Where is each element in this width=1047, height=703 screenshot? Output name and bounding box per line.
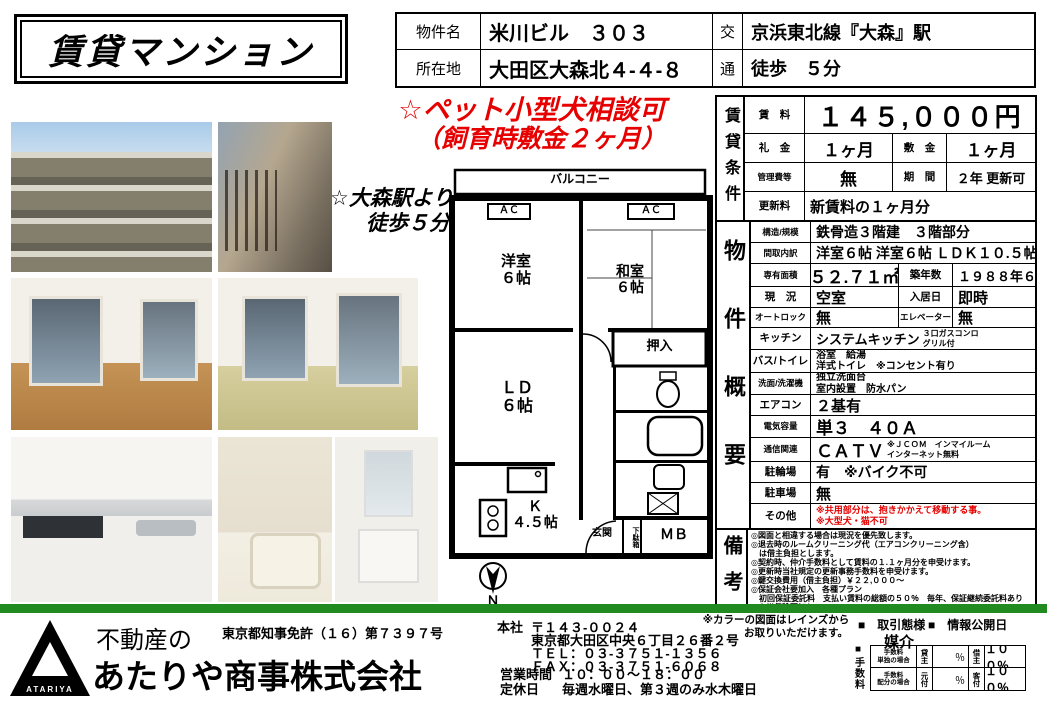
- company-logo: ATARIYA: [10, 620, 90, 696]
- bath-toilet-row: バス/トイレ 浴室 給湯 洋式トイレ ※コンセント有り: [751, 350, 1035, 373]
- plan-meterbox-label: ＭＢ: [644, 526, 704, 542]
- area-label: 専有面積: [751, 264, 811, 286]
- plan-japanese-room-label: 和室 ６帖: [598, 263, 662, 295]
- key-money-value: １ヶ月: [805, 134, 893, 162]
- company-name: あたりや商事株式会社: [92, 650, 422, 698]
- other-label: その他: [751, 504, 811, 528]
- autolock-value: 無: [811, 308, 899, 327]
- plan-ac-left-label: ＡＣ: [488, 205, 530, 217]
- electric-row: 電気容量 単３ ４０Ａ: [751, 416, 1035, 438]
- hours-label: 営業時間: [500, 668, 562, 683]
- mgmtfee-term-row: 管理費等 無 期 間 ２年 更新可: [745, 163, 1035, 192]
- transport-line-value: 京浜東北線『大森』駅: [743, 14, 1034, 50]
- plan-living-label: ＬＤ ６帖: [472, 380, 562, 417]
- electric-label: 電気容量: [751, 416, 811, 437]
- movein-value: 即時: [953, 287, 1035, 307]
- pet-promo-text: ☆ペット小型犬相談可 （飼育時敷金２ヶ月）: [338, 96, 726, 153]
- property-overview-section-label: 物件概要: [717, 222, 751, 528]
- hours-value: １０：００～１８：００: [562, 668, 705, 683]
- reins-note: ※カラーの図面はレインズから お取りいただけます。: [688, 614, 864, 639]
- fee-row2-party2: 客付: [969, 668, 985, 690]
- reins-note-line1: ※カラーの図面はレインズから: [688, 614, 864, 627]
- catv-value: ＣＡＴＶ: [811, 438, 884, 461]
- property-name-label: 物件名: [397, 14, 481, 50]
- address-value: 大田区大森北４-４-８: [481, 50, 713, 86]
- photo-washbasin: [335, 437, 438, 602]
- fee-row2-party1: 元付: [917, 668, 933, 690]
- fee-row1-name: 手数料 単独の場合: [871, 646, 917, 668]
- status-value: 空室: [811, 287, 899, 307]
- transport-label-top: 交: [713, 14, 743, 50]
- kitchen-row: キッチン システムキッチン ３口ガスコンロ グリル付: [751, 328, 1035, 350]
- keymoney-deposit-row: 礼 金 １ヶ月 敷 金 １ヶ月: [745, 134, 1035, 163]
- remarks-section-label: 備考: [717, 530, 748, 611]
- pet-promo-line2: （飼育時敷金２ヶ月）: [338, 126, 726, 154]
- status-movein-row: 現 況 空室 入居日 即時: [751, 287, 1035, 308]
- property-overview-section: 物件概要 構造/規模 鉄骨造３階建 ３階部分 間取内訳 洋室６帖 洋室６帖 ＬＤ…: [715, 222, 1037, 530]
- parking-label: 駐車場: [751, 483, 811, 503]
- kitchen-label: キッチン: [751, 328, 811, 349]
- autolock-elevator-row: オートロック 無 エレベーター 無: [751, 308, 1035, 328]
- layout-row: 間取内訳 洋室６帖 洋室６帖 ＬＤＫ１０.５帖: [751, 243, 1035, 264]
- catv-row: 通信関連 ＣＡＴＶ ※ＪＣＯＭ インマイルーム インターネット無料: [751, 438, 1035, 462]
- washbasin-value: 独立洗面台 室内設置 防水パン: [811, 373, 1035, 394]
- renewal-value: 新賃料の１ヶ月分: [805, 192, 1035, 220]
- reins-note-line2: お取りいただけます。: [688, 627, 864, 640]
- photo-japanese-room: [218, 278, 418, 430]
- area-value: ５２.７１㎡: [811, 264, 899, 286]
- fee-row2-name-line2: 配分の場合: [877, 679, 910, 686]
- other-row: その他 ※共用部分は、抱きかかえて移動する事。 ※大型犬・猫不可: [751, 504, 1035, 528]
- photo-kitchen: [11, 437, 212, 602]
- aircon-row: エアコン ２基有: [751, 395, 1035, 416]
- aircon-value: ２基有: [811, 395, 1035, 415]
- parking-value: 無: [811, 483, 1035, 503]
- rental-conditions-section: 賃貸条件 賃 料 １４５,０００円 礼 金 １ヶ月 敷 金 １ヶ月 管理費等 無…: [715, 95, 1037, 222]
- parking-row: 駐車場 無: [751, 483, 1035, 504]
- deposit-value: １ヶ月: [947, 134, 1035, 162]
- layout-label: 間取内訳: [751, 243, 811, 263]
- washbasin-row: 洗面/洗濯機 独立洗面台 室内設置 防水パン: [751, 373, 1035, 395]
- fee-table: 手数料 単独の場合 貸主 ％ 借主 １００％ 手数料 配分の場合 元付 ％ 客付…: [870, 645, 1026, 691]
- other-value: ※共用部分は、抱きかかえて移動する事。 ※大型犬・猫不可: [811, 504, 1035, 528]
- built-year-label: 築年数: [899, 264, 953, 286]
- holiday-value: 毎週水曜日、第３週のみ水木曜日: [562, 683, 757, 698]
- pet-promo-line1: ☆ペット小型犬相談可: [338, 96, 726, 126]
- holiday-label: 定休日: [500, 683, 562, 698]
- photo-building-exterior: [11, 122, 212, 272]
- deposit-label: 敷 金: [893, 134, 947, 162]
- fee-row1-value2: １００％: [985, 646, 1025, 668]
- logo-text: ATARIYA: [10, 685, 90, 694]
- flyer-title: 賃貸マンション: [48, 24, 314, 75]
- plan-closet-label: 押入: [617, 339, 702, 354]
- bicycle-value: 有 ※バイク不可: [811, 462, 1035, 482]
- fee-row2-value2: １００％: [985, 668, 1025, 690]
- plan-kitchen-label: Ｋ ４.５帖: [496, 498, 574, 530]
- mgmt-fee-label: 管理費等: [745, 163, 805, 191]
- fee-row1-party2: 借主: [969, 646, 985, 668]
- rent-row: 賃 料 １４５,０００円: [745, 97, 1035, 134]
- structure-row: 構造/規模 鉄骨造３階建 ３階部分: [751, 222, 1035, 243]
- fee-block: ■ 手数料 手数料 単独の場合 貸主 ％ 借主 １００％ 手数料 配分の場合 元…: [846, 645, 1026, 691]
- office-label: 本社: [497, 621, 531, 634]
- fee-row2-value1: ％: [933, 668, 969, 690]
- mgmt-fee-value: 無: [805, 163, 893, 191]
- layout-value: 洋室６帖 洋室６帖 ＬＤＫ１０.５帖: [811, 243, 1035, 263]
- term-value: ２年 更新可: [947, 163, 1035, 191]
- license-number: 東京都知事免許（１６）第７３９７号: [222, 623, 443, 642]
- fee-section-label: 手数料: [851, 657, 866, 690]
- fee-bullet-icon: ■: [855, 645, 861, 655]
- bicycle-row: 駐輪場 有 ※バイク不可: [751, 462, 1035, 483]
- plan-western-room-label: 洋室 ６帖: [466, 253, 566, 288]
- built-year-value: １９８８年６月: [953, 264, 1035, 286]
- plan-ac-right-label: ＡＣ: [628, 205, 674, 217]
- catv-note: ※ＪＣＯＭ インマイルーム インターネット無料: [884, 438, 1035, 461]
- photo-bathroom: [218, 437, 332, 602]
- bath-toilet-value: 浴室 給湯 洋式トイレ ※コンセント有り: [811, 350, 1035, 372]
- area-age-row: 専有面積 ５２.７１㎡ 築年数 １９８８年６月: [751, 264, 1035, 287]
- property-header-table: 物件名 米川ビル ３０３ 交 京浜東北線『大森』駅 所在地 大田区大森北４-４-…: [395, 12, 1036, 88]
- plan-shoebox-label: 下駄箱: [625, 521, 639, 553]
- flyer-title-box: 賃貸マンション: [14, 14, 348, 84]
- transport-label-bottom: 通: [713, 50, 743, 86]
- kitchen-note: ３口ガスコンロ グリル付: [920, 328, 1035, 349]
- fee-row1-party1: 貸主: [917, 646, 933, 668]
- remarks-section: 備考 ◎図面と相違する場合は現況を優先致します。 ◎退去時のルームクリーニング代…: [715, 530, 1037, 613]
- flyer-title-inner-frame: 賃貸マンション: [20, 20, 342, 78]
- washbasin-label: 洗面/洗濯機: [751, 373, 811, 394]
- rental-conditions-section-label: 賃貸条件: [717, 97, 745, 220]
- elevator-value: 無: [953, 308, 1035, 327]
- fee-row1-name-line2: 単独の場合: [877, 657, 910, 664]
- aircon-label: エアコン: [751, 395, 811, 415]
- key-money-label: 礼 金: [745, 134, 805, 162]
- fee-row1-value1: ％: [933, 646, 969, 668]
- property-overview-rows: 構造/規模 鉄骨造３階建 ３階部分 間取内訳 洋室６帖 洋室６帖 ＬＤＫ１０.５…: [751, 222, 1035, 528]
- term-label: 期 間: [893, 163, 947, 191]
- rent-value: １４５,０００円: [805, 97, 1035, 133]
- movein-label: 入居日: [899, 287, 953, 307]
- business-hours-block: 営業時間 １０：００～１８：００ 定休日 毎週水曜日、第３週のみ水木曜日: [500, 668, 757, 697]
- property-name-value: 米川ビル ３０３: [481, 14, 713, 50]
- status-label: 現 況: [751, 287, 811, 307]
- fee-row2-name-line1: 手数料: [884, 672, 904, 679]
- bath-toilet-label: バス/トイレ: [751, 350, 811, 372]
- renewal-row: 更新料 新賃料の１ヶ月分: [745, 192, 1035, 220]
- renewal-label: 更新料: [745, 192, 805, 220]
- structure-value: 鉄骨造３階建 ３階部分: [811, 222, 1035, 242]
- bicycle-label: 駐輪場: [751, 462, 811, 482]
- green-divider-bar: [0, 604, 1047, 613]
- plan-balcony-label: バルコニー: [455, 173, 705, 187]
- photo-living-room: [11, 278, 212, 430]
- fee-side-label: ■ 手数料: [846, 645, 870, 691]
- transport-walk-value: 徒歩 ５分: [743, 50, 1034, 86]
- electric-value: 単３ ４０Ａ: [811, 416, 1035, 437]
- info-date-label: ■ 情報公開日: [928, 616, 1007, 633]
- floor-plan: バルコニー ＡＣ ＡＣ 洋室 ６帖 和室 ６帖 押入 ＬＤ ６帖 Ｋ ４.５帖 …: [448, 168, 714, 614]
- rental-conditions-rows: 賃 料 １４５,０００円 礼 金 １ヶ月 敷 金 １ヶ月 管理費等 無 期 間 …: [745, 97, 1035, 220]
- remarks-body: ◎図面と相違する場合は現況を優先致します。 ◎退去時のルームクリーニング代（エア…: [748, 530, 1035, 611]
- plan-entrance-label: 玄関: [582, 528, 622, 540]
- fee-row1-name-line1: 手数料: [884, 649, 904, 656]
- address-label: 所在地: [397, 50, 481, 86]
- photo-balcony: [218, 122, 332, 272]
- rental-flyer: 賃貸マンション 物件名 米川ビル ３０３ 交 京浜東北線『大森』駅 所在地 大田…: [0, 0, 1047, 703]
- catv-label: 通信関連: [751, 438, 811, 461]
- kitchen-value: システムキッチン: [811, 328, 920, 349]
- elevator-label: エレベーター: [899, 308, 953, 327]
- fee-row2-name: 手数料 配分の場合: [871, 668, 917, 690]
- rent-label: 賃 料: [745, 97, 805, 133]
- autolock-label: オートロック: [751, 308, 811, 327]
- structure-label: 構造/規模: [751, 222, 811, 242]
